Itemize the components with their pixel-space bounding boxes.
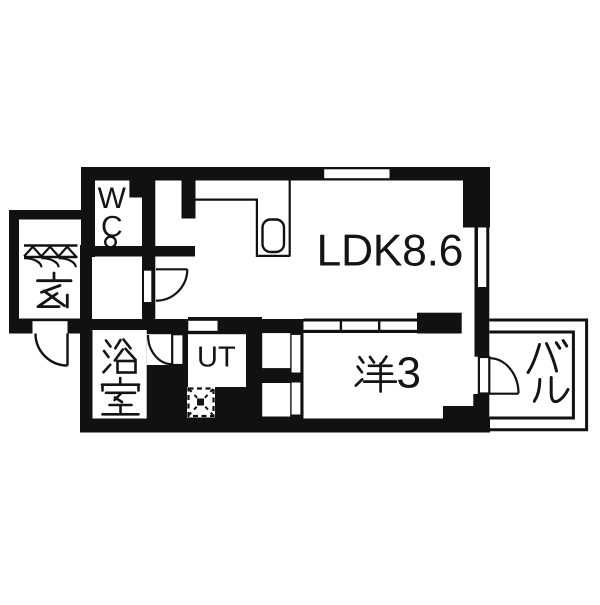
svg-text:UT: UT <box>197 342 236 374</box>
svg-text:3: 3 <box>397 349 421 398</box>
svg-text:C: C <box>101 211 123 244</box>
svg-text:LDK8.6: LDK8.6 <box>317 227 464 276</box>
